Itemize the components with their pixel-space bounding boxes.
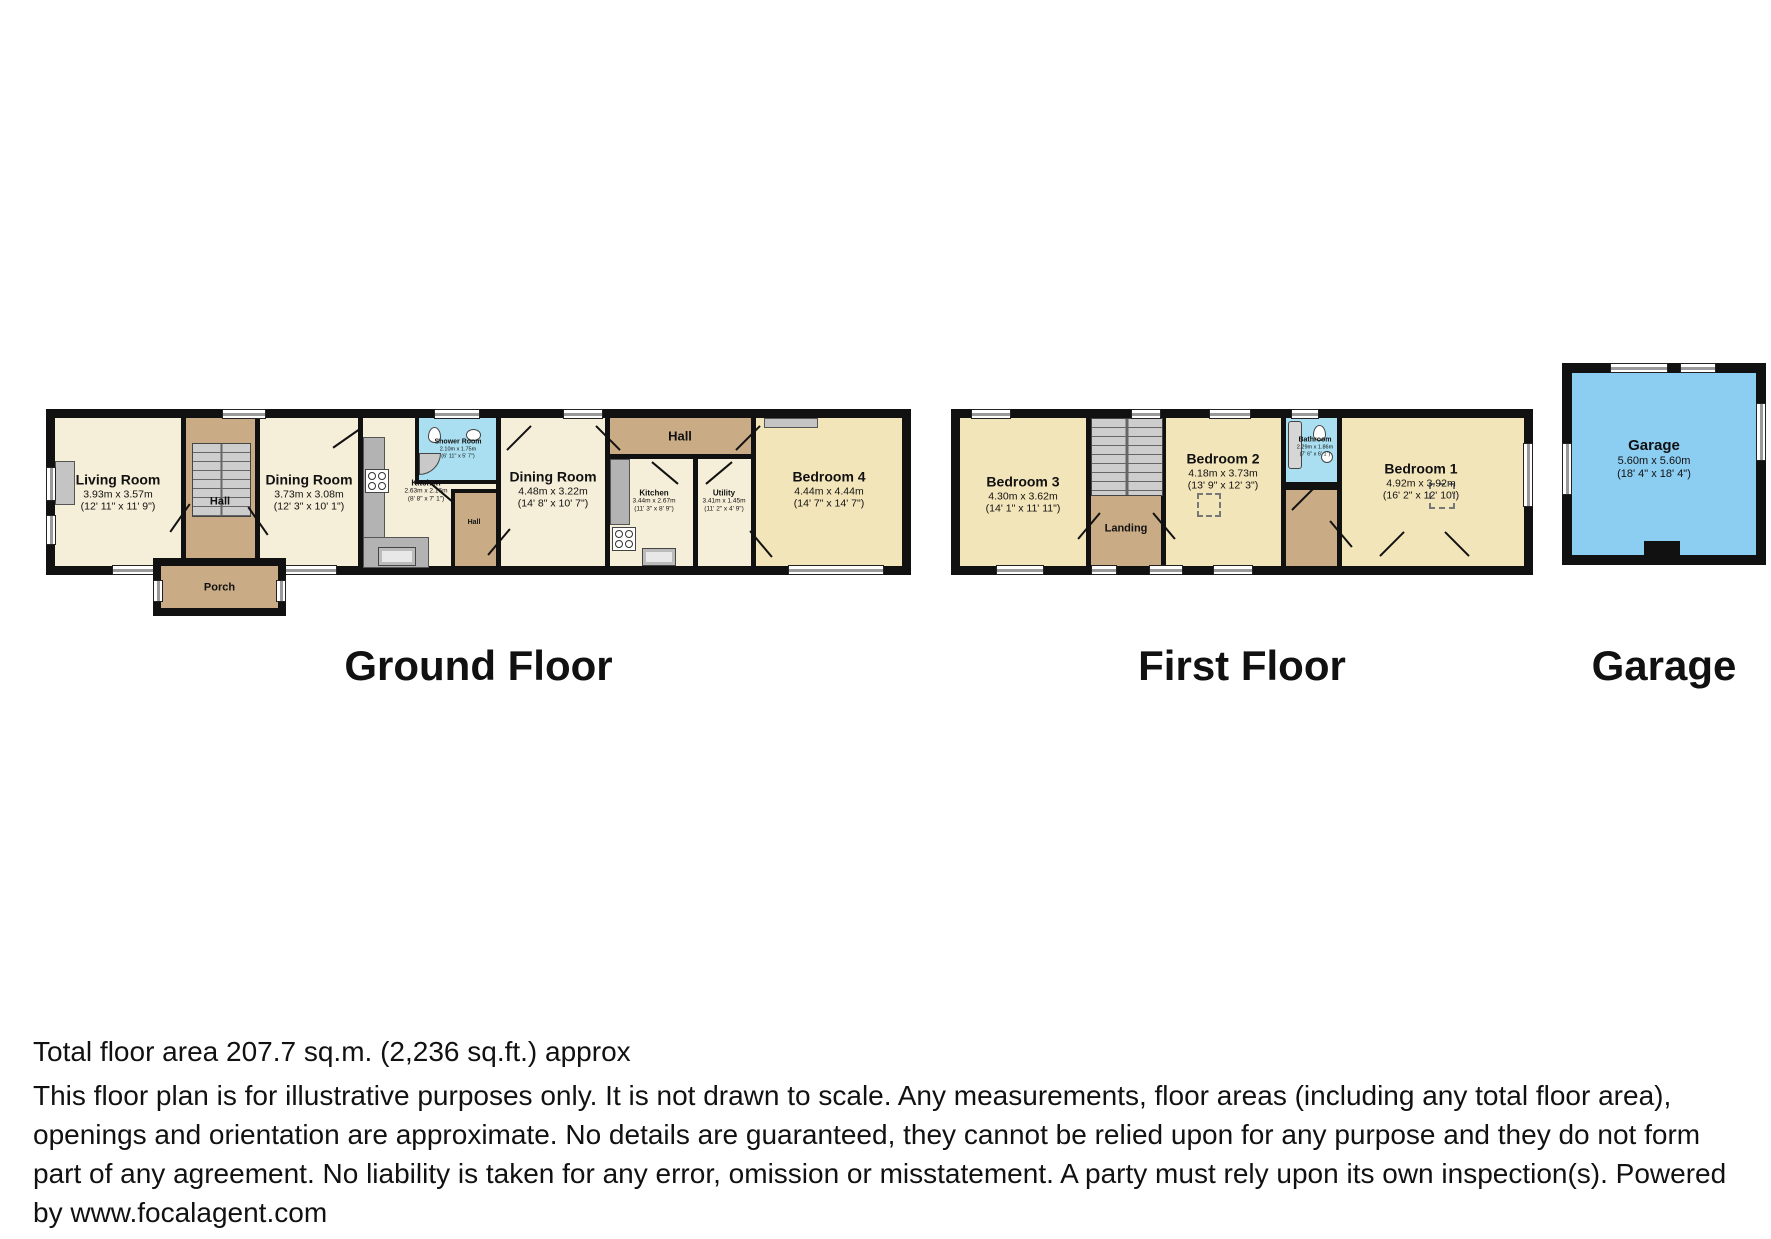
garage-plan: Garage 5.60m x 5.60m (18' 4" x 18' 4") — [1562, 363, 1766, 565]
window — [434, 409, 480, 419]
label-hall-top: Hall — [668, 428, 692, 443]
window — [1091, 565, 1117, 575]
window — [1213, 565, 1253, 575]
room-name: Living Room — [76, 471, 161, 488]
room-name: Hall — [468, 519, 481, 527]
label-dining-room-1: Dining Room 3.73m x 3.08m (12' 3" x 10' … — [265, 471, 352, 512]
label-bedroom-1: Bedroom 1 4.92m x 3.92m (16' 2" x 12' 10… — [1383, 460, 1459, 501]
window — [1149, 565, 1183, 575]
room-dims-metric: 5.60m x 5.60m — [1617, 455, 1691, 468]
window — [1291, 409, 1319, 419]
room-name: Porch — [204, 581, 235, 594]
room-dims-imperial: (11' 2" x 4' 9") — [703, 506, 746, 514]
caption-first-floor: First Floor — [951, 641, 1533, 691]
room-name: Shower Room — [434, 438, 481, 446]
room-dims-metric: 4.44m x 4.44m — [792, 485, 865, 497]
window — [276, 580, 286, 602]
ground-floor-plan: Living Room 3.93m x 3.57m (12' 11" x 11'… — [46, 409, 911, 575]
window — [1562, 443, 1572, 495]
floorplan-page: Living Room 3.93m x 3.57m (12' 11" x 11'… — [0, 0, 1771, 1239]
cooker-hob-icon — [612, 527, 636, 551]
room-name: Bedroom 3 — [986, 473, 1061, 490]
room-name: Bedroom 4 — [792, 468, 865, 485]
window — [996, 565, 1044, 575]
room-dims-imperial: (16' 2" x 12' 10") — [1383, 489, 1459, 501]
window — [46, 467, 56, 501]
window — [1131, 409, 1161, 419]
wall-pier — [1644, 541, 1680, 565]
room-name: Hall — [210, 496, 230, 509]
room-dims-imperial: (8' 8" x 7' 1") — [405, 496, 448, 504]
window — [971, 409, 1011, 419]
room-dims-imperial: (14' 7" x 14' 7") — [792, 497, 865, 509]
room-dims-metric: 3.44m x 2.67m — [633, 498, 676, 506]
label-shower-room: Shower Room 2.10m x 1.75m (6' 11" x 5' 7… — [434, 438, 481, 459]
window-lintel — [764, 418, 818, 428]
label-bathroom: Bathroom 2.29m x 1.86m (7' 6" x 6' 1") — [1297, 436, 1333, 457]
label-utility: Utility 3.41m x 1.45m (11' 2" x 4' 9") — [703, 489, 746, 514]
room-dims-metric: 2.29m x 1.86m — [1297, 445, 1333, 451]
room-dims-imperial: (12' 11" x 11' 9") — [76, 500, 161, 512]
room-name: Bedroom 2 — [1186, 450, 1259, 467]
label-bedroom-4: Bedroom 4 4.44m x 4.44m (14' 7" x 14' 7"… — [792, 468, 865, 509]
total-floor-area: Total floor area 207.7 sq.m. (2,236 sq.f… — [33, 1036, 631, 1068]
room-dims-metric: 4.92m x 3.92m — [1383, 477, 1459, 489]
room-name: Hall — [668, 428, 692, 443]
room-dims-imperial: (18' 4" x 18' 4") — [1617, 468, 1691, 481]
room-dims-metric: 3.73m x 3.08m — [265, 488, 352, 500]
room-name: Dining Room — [509, 468, 596, 485]
staircase — [1091, 418, 1163, 496]
window — [1209, 409, 1251, 419]
room-name: Bedroom 1 — [1383, 460, 1459, 477]
room-name: Garage — [1617, 437, 1691, 455]
room-name: Landing — [1105, 523, 1148, 536]
label-kitchen-1: Kitchen 2.63m x 2.16m (8' 8" x 7' 1") — [405, 479, 448, 504]
window — [153, 580, 163, 602]
label-hall-small: Hall — [468, 519, 481, 527]
room-dims-imperial: (7' 6" x 6' 1") — [1297, 451, 1333, 457]
label-kitchen-2: Kitchen 3.44m x 2.67m (11' 3" x 8' 9") — [633, 489, 676, 514]
room-corridor — [1286, 490, 1337, 566]
room-dims-imperial: (14' 1" x 11' 11") — [986, 502, 1061, 514]
room-name: Bathroom — [1297, 436, 1333, 444]
room-name: Dining Room — [265, 471, 352, 488]
caption-garage: Garage — [1562, 641, 1766, 691]
label-hall: Hall — [210, 496, 230, 509]
room-name: Utility — [703, 489, 746, 498]
label-bedroom-3: Bedroom 3 4.30m x 3.62m (14' 1" x 11' 11… — [986, 473, 1061, 514]
room-bedroom-2 — [1166, 418, 1281, 566]
label-garage: Garage 5.60m x 5.60m (18' 4" x 18' 4") — [1617, 437, 1691, 481]
window — [1523, 443, 1533, 507]
loft-hatch — [1197, 493, 1221, 517]
cooker-hob-icon — [365, 469, 389, 493]
window — [1610, 363, 1668, 373]
first-floor-plan: Bedroom 3 4.30m x 3.62m (14' 1" x 11' 11… — [951, 409, 1533, 575]
label-living-room: Living Room 3.93m x 3.57m (12' 11" x 11'… — [76, 471, 161, 512]
room-dims-metric: 2.10m x 1.75m — [434, 447, 481, 453]
window — [563, 409, 603, 419]
window — [1680, 363, 1716, 373]
room-dims-imperial: (13' 9" x 12' 3") — [1186, 479, 1259, 491]
label-bedroom-2: Bedroom 2 4.18m x 3.73m (13' 9" x 12' 3"… — [1186, 450, 1259, 491]
sink-icon — [378, 547, 416, 566]
room-dims-imperial: (6' 11" x 5' 7") — [434, 453, 481, 459]
kitchen-counter — [610, 459, 630, 525]
fireplace-bay — [55, 461, 75, 505]
sink-icon — [642, 548, 676, 566]
room-dims-metric: 3.93m x 3.57m — [76, 488, 161, 500]
room-dims-metric: 3.41m x 1.45m — [703, 498, 746, 506]
label-landing: Landing — [1105, 523, 1148, 536]
room-dims-metric: 2.63m x 2.16m — [405, 488, 448, 496]
window — [281, 565, 337, 575]
label-porch: Porch — [204, 581, 235, 594]
room-dims-metric: 4.18m x 3.73m — [1186, 467, 1259, 479]
room-dims-metric: 4.48m x 3.22m — [509, 485, 596, 497]
room-dims-imperial: (12' 3" x 10' 1") — [265, 500, 352, 512]
window — [46, 515, 56, 545]
disclaimer-text: This floor plan is for illustrative purp… — [33, 1076, 1738, 1232]
room-dims-imperial: (11' 3" x 8' 9") — [633, 506, 676, 514]
room-porch: Porch — [153, 558, 286, 616]
window — [222, 409, 266, 419]
caption-ground-floor: Ground Floor — [46, 641, 911, 691]
room-dims-metric: 4.30m x 3.62m — [986, 490, 1061, 502]
room-dims-imperial: (14' 8" x 10' 7") — [509, 497, 596, 509]
room-name: Kitchen — [405, 479, 448, 488]
window — [1756, 403, 1766, 461]
window — [788, 565, 884, 575]
room-name: Kitchen — [633, 489, 676, 498]
label-dining-room-2: Dining Room 4.48m x 3.22m (14' 8" x 10' … — [509, 468, 596, 509]
